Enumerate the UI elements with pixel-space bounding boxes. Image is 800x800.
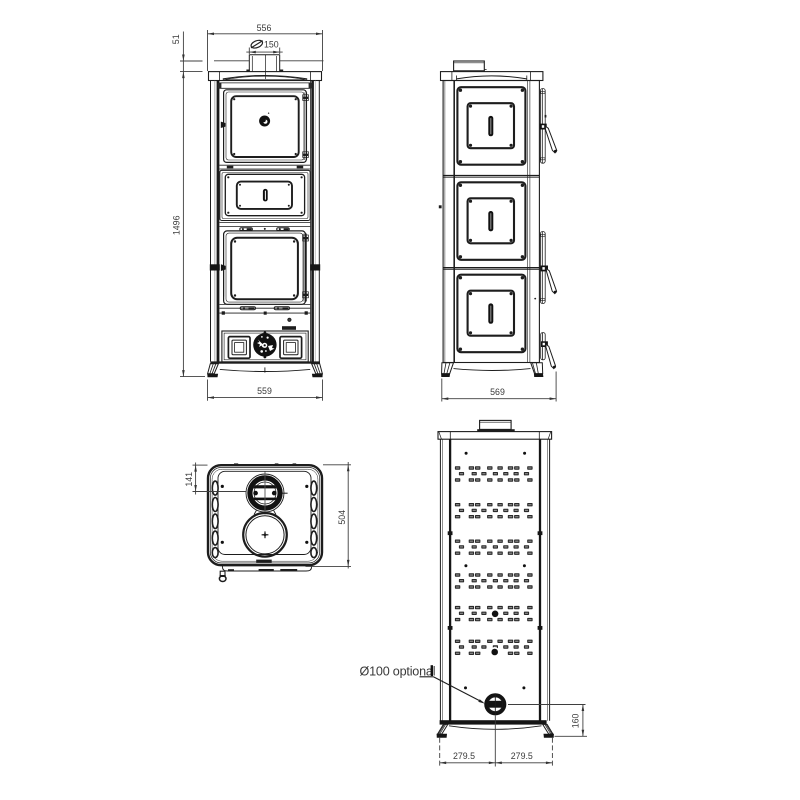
svg-text:141: 141 <box>184 472 194 487</box>
svg-text:279.5: 279.5 <box>453 751 475 761</box>
svg-text:51: 51 <box>171 34 181 44</box>
svg-text:279.5: 279.5 <box>511 751 533 761</box>
svg-text:559: 559 <box>257 386 272 396</box>
svg-text:569: 569 <box>490 387 505 397</box>
svg-text:504: 504 <box>337 510 347 525</box>
svg-text:150: 150 <box>264 39 279 49</box>
svg-text:556: 556 <box>257 23 272 33</box>
svg-text:160: 160 <box>571 713 581 728</box>
svg-text:1496: 1496 <box>172 215 182 235</box>
